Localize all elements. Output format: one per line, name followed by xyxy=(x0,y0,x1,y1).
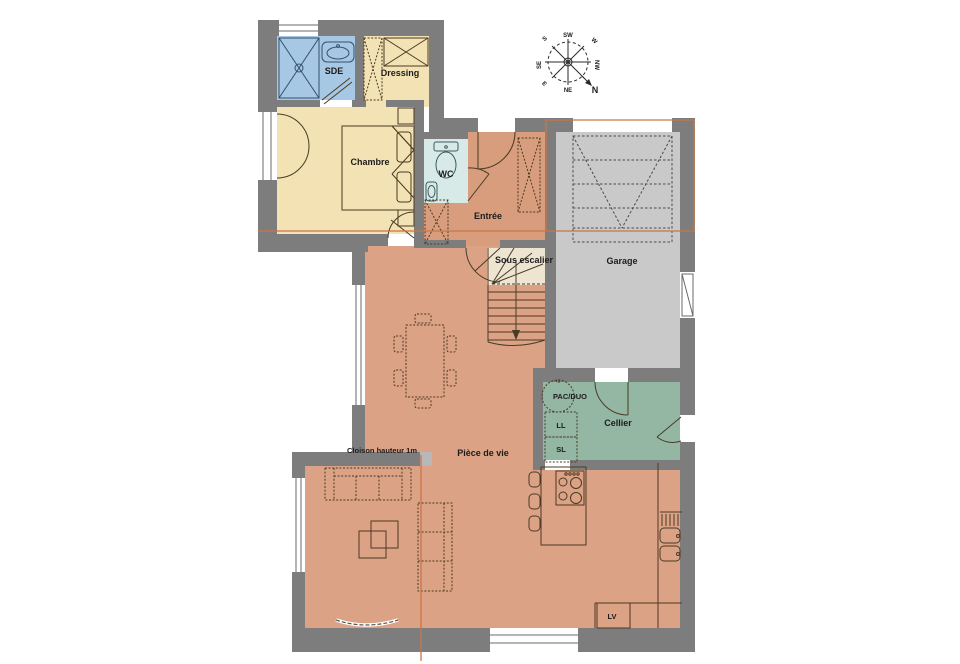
floor-plan: N S W E SW NW SE NE SDE Dressing Chambre… xyxy=(0,0,960,664)
compass-sw: SW xyxy=(563,33,573,39)
compass-rose: N S W E SW NW SE NE xyxy=(537,33,599,95)
window-living-left-upper xyxy=(352,285,365,405)
window-living-bottom xyxy=(490,628,578,652)
front-door-opening xyxy=(478,118,515,132)
cellier-side-door-opening xyxy=(680,415,695,442)
window-sde-top xyxy=(279,20,318,36)
room-sde-label: SDE xyxy=(325,66,344,76)
room-garage-label: Garage xyxy=(606,256,637,266)
room-piece-de-vie-lower-fill xyxy=(305,452,680,628)
cellier-top-door-opening xyxy=(595,368,628,382)
window-living-left-lower xyxy=(292,478,305,572)
room-wc-label: WC xyxy=(439,169,454,179)
room-piece-de-vie-label: Pièce de vie xyxy=(457,448,509,458)
room-cellier-label: Cellier xyxy=(604,418,632,428)
ll-label: LL xyxy=(556,421,566,430)
room-dressing-label: Dressing xyxy=(381,68,420,78)
room-sous-escalier-label: Sous escalier xyxy=(495,255,554,265)
compass-se: SE xyxy=(537,61,543,69)
compass-n: N xyxy=(592,85,599,95)
compass-w: W xyxy=(590,37,598,45)
compass-s: S xyxy=(542,36,549,43)
compass-e: E xyxy=(540,81,547,88)
sl-label: SL xyxy=(556,445,566,454)
window-chambre-left xyxy=(258,112,277,180)
cloison-label: Cloison hauteur 1m xyxy=(347,446,417,455)
room-entree-label: Entrée xyxy=(474,211,502,221)
room-chambre-label: Chambre xyxy=(350,157,389,167)
floor-plan-canvas: N S W E SW NW SE NE SDE Dressing Chambre… xyxy=(0,0,960,664)
cloison-wall-cap xyxy=(420,452,432,466)
lv-label: LV xyxy=(607,612,616,621)
room-sde-fill xyxy=(277,36,355,100)
garage-side-door xyxy=(680,272,695,318)
pac-duo-label: PAC/DUO xyxy=(553,392,587,401)
compass-nw: NW xyxy=(593,60,599,70)
compass-ne: NE xyxy=(564,88,572,94)
